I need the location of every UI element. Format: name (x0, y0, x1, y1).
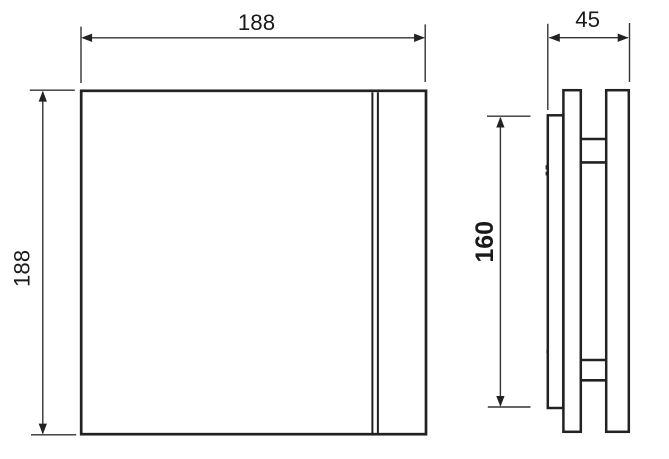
svg-text:188: 188 (238, 10, 275, 35)
svg-text:45: 45 (575, 7, 600, 32)
svg-text:160: 160 (471, 221, 499, 263)
svg-text:188: 188 (9, 250, 34, 287)
